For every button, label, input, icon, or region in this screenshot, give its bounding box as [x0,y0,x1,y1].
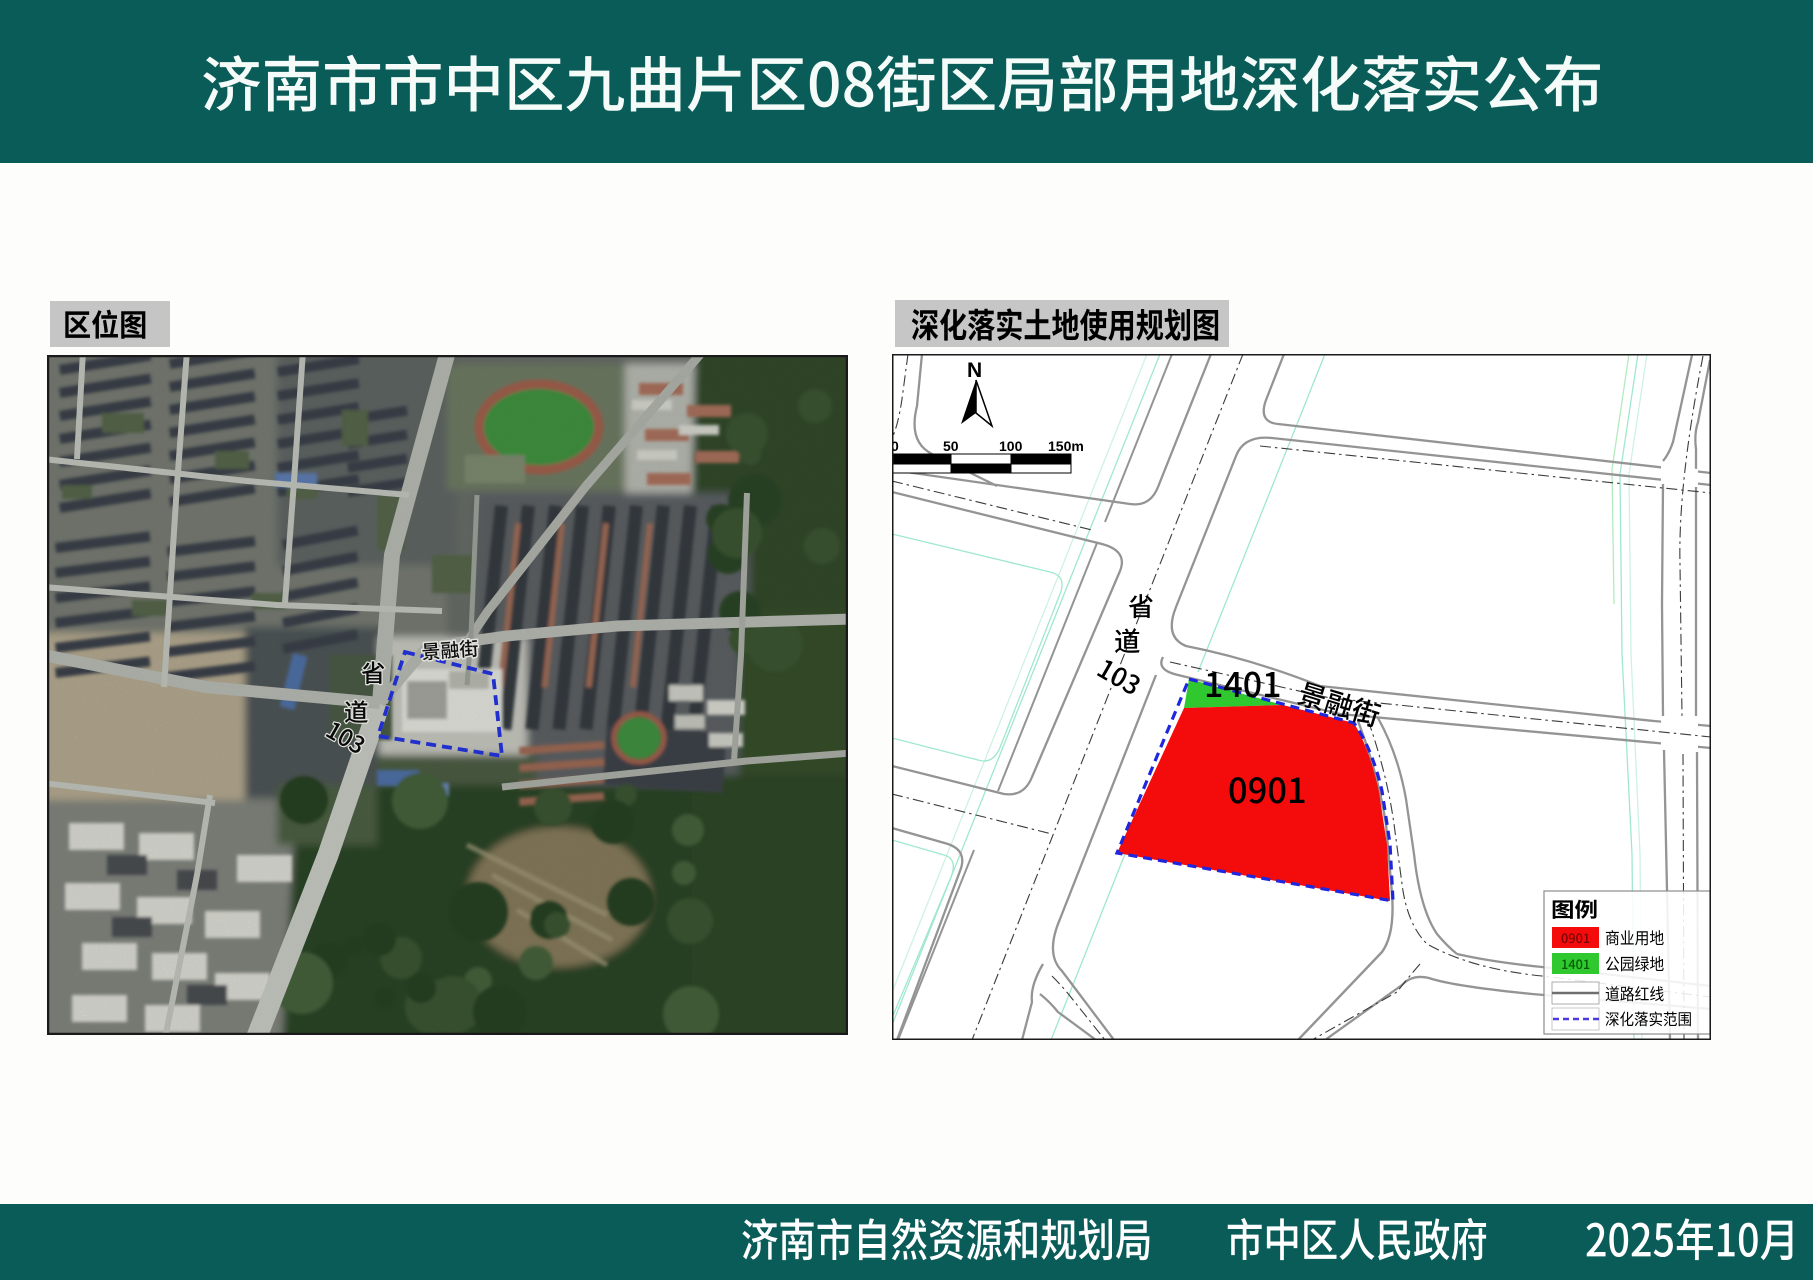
svg-text:150m: 150m [1048,438,1084,454]
svg-text:100: 100 [999,438,1023,454]
svg-text:50: 50 [943,438,959,454]
svg-text:N: N [967,359,982,382]
